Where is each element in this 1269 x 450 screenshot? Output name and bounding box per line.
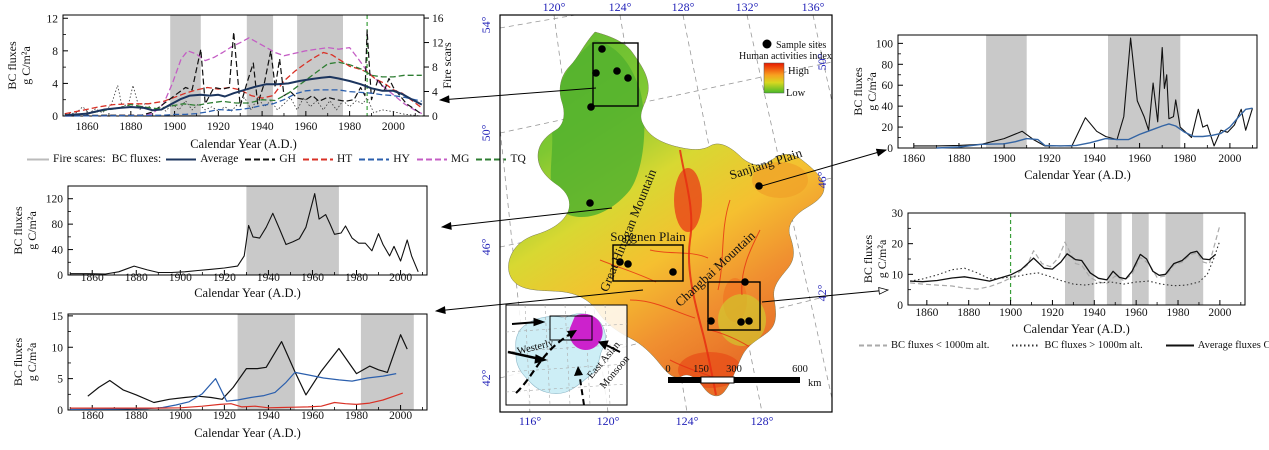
chart-text: 1940 xyxy=(1083,307,1106,319)
legend-swatch xyxy=(1011,341,1041,350)
legend-high: High xyxy=(788,66,810,77)
chart-text: 1980 xyxy=(338,121,361,133)
chart-text: 2000 xyxy=(389,410,412,422)
chart-text: 20 xyxy=(892,239,904,251)
chart-text: 1880 xyxy=(125,410,148,422)
chart-text: Calendar Year (A.D.) xyxy=(1023,322,1130,336)
chart-text: 1860 xyxy=(76,121,99,133)
chart-text: 100 xyxy=(876,38,894,50)
sample-site-dot xyxy=(707,317,715,325)
chart-text: 50° xyxy=(815,53,829,70)
chart-text: 600 xyxy=(792,364,808,375)
chart-text: 46° xyxy=(815,171,829,188)
legend-item: MG xyxy=(416,153,470,165)
legend-label: MG xyxy=(451,153,470,165)
highlight-band xyxy=(1065,213,1094,305)
chart-text: Calendar Year (A.D.) xyxy=(194,426,301,440)
chart-text: 1960 xyxy=(1128,153,1151,165)
chart-text: 1920 xyxy=(1041,307,1064,319)
legend-swatch xyxy=(358,155,390,164)
legend-label: GH xyxy=(279,153,296,165)
highlight-band xyxy=(1107,213,1122,305)
chart-text: 300 xyxy=(726,364,742,375)
legend-swatch xyxy=(165,155,197,164)
chart-text: 1940 xyxy=(257,272,280,284)
legend-label: BC fluxes < 1000m alt. xyxy=(891,340,989,351)
legend-item: Average fluxes Changbai Mountain xyxy=(1165,340,1269,351)
chart-canvas-top-right: 1860188019001920194019601980200002040608… xyxy=(850,0,1269,185)
chart-text: Calendar Year (A.D.) xyxy=(194,286,301,300)
chart-text: 1860 xyxy=(915,307,938,319)
hai-gradient-swatch xyxy=(764,63,784,93)
legend-item: BC fluxes < 1000m alt. xyxy=(858,340,989,351)
map-panel: Great Hinggan Mountain Sanjiang Plain So… xyxy=(480,0,870,445)
chart-text: 2000 xyxy=(382,121,405,133)
chart-text: 42° xyxy=(480,369,493,386)
chart-text: 120° xyxy=(543,0,566,14)
chart-bc-flux-top-right: 1860188019001920194019601980200002040608… xyxy=(850,0,1269,185)
chart-text: 1920 xyxy=(207,121,230,133)
chart-text: BC fluxes xyxy=(5,41,19,90)
chart-text: 1920 xyxy=(213,410,236,422)
sample-site-dot xyxy=(624,74,632,82)
chart-text: 54° xyxy=(480,16,493,33)
chart-text: 150 xyxy=(693,364,709,375)
chart-text: 16 xyxy=(432,13,444,25)
chart-text: 40 xyxy=(882,101,894,113)
highlight-band xyxy=(246,186,339,275)
chart-text: 15 xyxy=(52,311,64,323)
chart-text: 124° xyxy=(676,414,699,428)
chart-text: 1980 xyxy=(1173,153,1196,165)
highlight-band xyxy=(297,15,343,116)
legend-sample-sites: Sample sites xyxy=(776,40,826,51)
chart-text: 1900 xyxy=(169,410,192,422)
chart-text: BC fluxes xyxy=(11,338,25,387)
chart-text: 1880 xyxy=(119,121,142,133)
chart-text: 8 xyxy=(432,62,438,74)
chart-text: 20 xyxy=(882,122,894,134)
highlight-band xyxy=(247,15,273,116)
chart-text: 0 xyxy=(897,300,903,312)
chart-text: 1940 xyxy=(257,410,280,422)
chart-text: 1940 xyxy=(1083,153,1106,165)
chart-text: 1940 xyxy=(251,121,274,133)
series-BC fluxes xyxy=(70,194,418,274)
chart-text: 1920 xyxy=(213,272,236,284)
chart-text: 1880 xyxy=(957,307,980,319)
map-canvas: Great Hinggan Mountain Sanjiang Plain So… xyxy=(480,0,870,445)
legend-label: BC fluxes > 1000m alt. xyxy=(1044,340,1142,351)
sample-site-dot xyxy=(598,45,606,53)
legend-swatch xyxy=(1165,341,1195,350)
legend-swatch xyxy=(26,155,50,164)
chart-text: g C/m²a xyxy=(19,46,33,85)
highlight-band xyxy=(170,15,201,116)
chart-text: 136° xyxy=(802,0,825,14)
chart-text: 1900 xyxy=(993,153,1016,165)
chart-text: 10 xyxy=(892,269,904,281)
chart-text: 5 xyxy=(57,374,63,386)
inset-map: Westerly East Asian Monsoon xyxy=(506,305,633,405)
chart-text: 2000 xyxy=(389,272,412,284)
chart-text: BC fluxes xyxy=(11,206,25,255)
legend-item: GH xyxy=(244,153,296,165)
legend-fire-scars-prefix: Fire scares: xyxy=(26,153,106,165)
chart-text: Fire scars xyxy=(440,42,454,89)
sample-site-dot xyxy=(586,199,594,207)
chart-text: 60 xyxy=(882,80,894,92)
chart-text: 10 xyxy=(52,342,64,354)
chart-text: 116° xyxy=(519,414,542,428)
sample-site-dot xyxy=(592,69,600,77)
chart-text: 1900 xyxy=(163,121,186,133)
chart-text: 0 xyxy=(887,143,893,155)
legend-label: Average xyxy=(200,153,238,165)
sample-site-dot xyxy=(624,260,632,268)
legend-item: Average xyxy=(165,153,238,165)
legend-bc-fluxes-prefix: BC fluxes: xyxy=(112,153,162,165)
chart-text: 0 xyxy=(432,111,438,123)
legend-swatch xyxy=(302,155,334,164)
chart-text: 1960 xyxy=(1125,307,1148,319)
chart-text: km xyxy=(808,378,821,389)
chart-text: g C/m²a xyxy=(875,239,889,278)
chart-canvas-top-left: 1860188019001920194019601980200004812048… xyxy=(0,0,462,152)
series-annual xyxy=(914,38,1253,146)
chart-text: 1860 xyxy=(902,153,925,165)
chart-text: 0 xyxy=(57,405,63,417)
chart-text: 80 xyxy=(882,59,894,71)
chart-text: 1960 xyxy=(301,272,324,284)
chart-legend-fire-scars: Fire scares:BC fluxes:AverageGHHTHYMGTQ xyxy=(26,153,532,165)
chart-text: 124° xyxy=(609,0,632,14)
chart-text: Calendar Year (A.D.) xyxy=(1024,168,1131,182)
legend-swatch xyxy=(244,155,276,164)
label-songnen: Songnen Plain xyxy=(610,229,686,244)
sample-site-dot xyxy=(587,103,595,111)
chart-text: 128° xyxy=(751,414,774,428)
chart-canvas-middle-left: 1860188019001920194019601980200004080120… xyxy=(0,176,462,308)
chart-bc-flux-bottom-left: 18601880190019201940196019802000051015Ca… xyxy=(0,308,462,445)
chart-text: 1880 xyxy=(125,272,148,284)
chart-legend-changbai: BC fluxes < 1000m alt.BC fluxes > 1000m … xyxy=(858,340,1269,351)
chart-text: 120 xyxy=(46,194,64,206)
chart-text: 30 xyxy=(892,208,904,220)
highlight-band xyxy=(986,35,1027,148)
axis-frame xyxy=(898,35,1257,148)
legend-item: BC fluxes > 1000m alt. xyxy=(1011,340,1142,351)
chart-text: 0 xyxy=(52,111,58,123)
chart-text: g C/m²a xyxy=(25,342,39,381)
sample-site-legend-dot xyxy=(763,40,772,49)
chart-text: 1900 xyxy=(999,307,1022,319)
chart-text: 1960 xyxy=(301,410,324,422)
chart-text: 1960 xyxy=(294,121,317,133)
chart-text: 1860 xyxy=(81,410,104,422)
chart-text: 12 xyxy=(47,13,59,25)
chart-text: 4 xyxy=(432,87,438,99)
chart-text: 2000 xyxy=(1208,307,1231,319)
legend-label: Average fluxes Changbai Mountain xyxy=(1198,340,1269,351)
sample-site-dot xyxy=(737,318,745,326)
highlight-band xyxy=(1108,35,1180,148)
chart-bc-flux-changbai: 186018801900192019401960198020000102030C… xyxy=(850,190,1269,340)
chart-text: 1900 xyxy=(169,272,192,284)
chart-text: 8 xyxy=(52,46,58,58)
sample-site-dot xyxy=(669,268,677,276)
chart-text: Calendar Year (A.D.) xyxy=(190,137,297,151)
chart-bc-fluxes-fire-scars: 1860188019001920194019601980200004812048… xyxy=(0,0,462,152)
sample-site-dot xyxy=(741,278,749,286)
chart-text: 80 xyxy=(52,219,64,231)
highlight-band xyxy=(238,314,295,410)
series-HT xyxy=(65,53,422,114)
legend-label: HT xyxy=(337,153,352,165)
sample-site-dot xyxy=(613,67,621,75)
chart-canvas-changbai: 186018801900192019401960198020000102030C… xyxy=(850,190,1269,340)
chart-text: 1920 xyxy=(1038,153,1061,165)
chart-text: 132° xyxy=(736,0,759,14)
chart-text: 42° xyxy=(815,284,829,301)
chart-text: 128° xyxy=(672,0,695,14)
chart-text: g C/m²a xyxy=(25,211,39,250)
sample-site-dot xyxy=(755,182,763,190)
chart-text: 120° xyxy=(597,414,620,428)
chart-canvas-bottom-left: 18601880190019201940196019802000051015Ca… xyxy=(0,308,462,445)
chart-text: 1880 xyxy=(947,153,970,165)
chart-text: 2000 xyxy=(1218,153,1241,165)
chart-text: 1980 xyxy=(345,272,368,284)
highlight-band xyxy=(361,314,414,410)
chart-bc-flux-middle-left: 1860188019001920194019601980200004080120… xyxy=(0,176,462,308)
chart-text: 46° xyxy=(480,238,493,255)
chart-text: 40 xyxy=(52,245,64,257)
legend-item: HT xyxy=(302,153,352,165)
legend-item: HY xyxy=(358,153,410,165)
sample-site-dot xyxy=(745,317,753,325)
legend-label: HY xyxy=(393,153,410,165)
legend-label: Fire scares: xyxy=(53,153,106,165)
chart-text: 0 xyxy=(57,270,63,282)
legend-swatch xyxy=(416,155,448,164)
legend-low: Low xyxy=(786,88,806,99)
chart-text: 4 xyxy=(52,78,58,90)
chart-text: 1980 xyxy=(1167,307,1190,319)
chart-text: 50° xyxy=(480,124,493,141)
chart-text: 0 xyxy=(665,364,670,375)
chart-text: 1980 xyxy=(345,410,368,422)
